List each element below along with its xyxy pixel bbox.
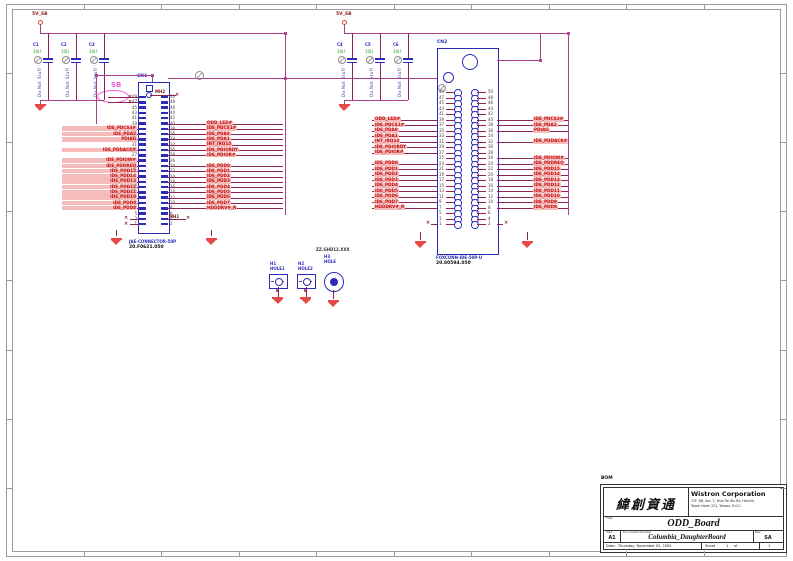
capacitor-ref: C2 <box>61 43 67 48</box>
wire <box>446 180 454 181</box>
connector-pin <box>139 170 146 173</box>
cn1-body <box>138 82 170 234</box>
wire <box>420 232 421 240</box>
connector-pin <box>139 122 146 125</box>
wire <box>477 120 486 121</box>
connector-pin <box>161 191 168 194</box>
wire <box>446 153 454 154</box>
capacitor-ref: C4 <box>337 43 343 48</box>
border-tick <box>239 551 240 556</box>
capacitor-plate <box>403 58 413 60</box>
capacitor-value: 10U <box>89 50 97 55</box>
net-label: PDIAG <box>62 137 137 142</box>
capacitor-value: 10U <box>337 50 345 55</box>
connector-pin <box>161 122 168 125</box>
gnd-symbol <box>522 243 532 248</box>
wire <box>76 63 77 100</box>
pin-number: 37 <box>439 123 444 127</box>
rev-label: Rev <box>755 531 761 534</box>
border-tick <box>780 142 786 143</box>
pin-number: 2 <box>170 222 173 226</box>
net-label: IDE_PDIOR# <box>374 150 404 155</box>
wire <box>48 63 49 100</box>
pin-number: 1 <box>439 222 442 226</box>
wire <box>446 114 454 115</box>
connector-pin <box>139 112 146 115</box>
gnd-symbol <box>111 240 121 245</box>
wire <box>130 219 139 220</box>
pin-number: 22 <box>488 167 493 171</box>
connector-pin <box>161 112 168 115</box>
border-tick <box>394 4 395 9</box>
pin-number: 14 <box>488 189 493 193</box>
connector-pin <box>139 106 146 109</box>
pin-number: 41 <box>439 112 444 116</box>
net-label: IDE_PDD6 <box>374 194 399 199</box>
tb-divider <box>604 516 783 517</box>
wire <box>446 202 454 203</box>
no-stuff-mark <box>34 56 42 64</box>
sheet-label: Sheet <box>705 544 715 548</box>
wire <box>497 60 540 61</box>
pin-number: 21 <box>439 167 444 171</box>
wire <box>96 75 152 76</box>
border-tick <box>316 4 317 9</box>
connector-pin <box>161 138 168 141</box>
border-tick <box>780 211 786 212</box>
company-logo-cjk: 緯創資通 <box>606 494 686 513</box>
no-stuff-mark <box>195 71 204 80</box>
wire-junction <box>567 32 570 35</box>
capacitor-plate <box>375 58 385 60</box>
wire <box>477 213 486 214</box>
cn2-key-circle-bottom <box>443 72 454 83</box>
wire <box>477 202 486 203</box>
wire <box>446 186 454 187</box>
pin-number: 47 <box>439 96 444 100</box>
connector-pin <box>139 202 146 205</box>
do-not-stuff-note: Do Not Stuff <box>397 65 402 97</box>
no-stuff-mark <box>394 56 402 64</box>
sheet-total: 1 <box>768 544 770 548</box>
gnd-symbol <box>273 299 283 304</box>
wire <box>108 97 139 98</box>
wire <box>477 153 486 154</box>
connector-pin <box>161 170 168 173</box>
pin-number: 28 <box>488 151 493 155</box>
pin-number: 20 <box>488 173 493 177</box>
wire <box>344 33 568 34</box>
no-stuff-mark <box>90 56 98 64</box>
wire <box>76 33 77 58</box>
border-tick <box>6 280 12 281</box>
wire <box>477 103 486 104</box>
date-label: Date: <box>606 544 616 548</box>
tb-divider <box>759 542 760 549</box>
wire <box>408 33 409 58</box>
connector-pin <box>139 196 146 199</box>
connector-pin <box>161 165 168 168</box>
title-block: 緯創資通 Wistron Corporation 21F, 88, Sec. 1… <box>600 484 787 553</box>
capacitor-ref: C6 <box>393 43 399 48</box>
schematic-sheet: CN1 MH2 MH1 JAE-CONNECTOR-50P 20.F0621.0… <box>0 0 793 561</box>
connector-pin <box>139 207 146 210</box>
wire <box>306 287 307 297</box>
pin-number: 40 <box>488 118 493 122</box>
wire <box>380 33 381 58</box>
wire <box>431 224 437 225</box>
net-label: IDE_PDIOR# <box>206 153 236 158</box>
wire <box>96 75 97 124</box>
pin-number: 36 <box>488 129 493 133</box>
border-tick <box>6 419 12 420</box>
pin-number: 6 <box>170 212 173 216</box>
wire <box>540 33 541 60</box>
gnd-symbol <box>301 299 311 304</box>
wire <box>446 92 454 93</box>
connector-pin <box>161 181 168 184</box>
connector-pin <box>161 96 168 99</box>
wire <box>380 63 381 100</box>
border-tick <box>471 4 472 9</box>
pin-number: 27 <box>439 151 444 155</box>
wire-junction <box>284 77 287 80</box>
cn2-key-circle-top <box>462 54 478 70</box>
do-not-stuff-note: Do Not Stuff <box>37 65 42 97</box>
capacitor-ref: C5 <box>365 43 371 48</box>
wire <box>40 24 41 33</box>
wire <box>477 224 486 225</box>
pin-number: 34 <box>488 134 493 138</box>
date-value: Thursday, November 03, 2005 <box>618 544 671 548</box>
wire <box>352 33 353 58</box>
connector-pin <box>161 175 168 178</box>
wire <box>477 142 486 143</box>
connector-pin <box>161 218 168 221</box>
wire <box>278 287 279 297</box>
pin-number: 11 <box>439 195 444 199</box>
cn1-key-square <box>146 85 153 92</box>
connector-pin <box>139 128 146 131</box>
wire <box>168 219 186 220</box>
no-stuff-mark <box>338 56 346 64</box>
wire <box>477 191 486 192</box>
wire <box>477 147 486 148</box>
wire <box>477 219 486 220</box>
wire <box>477 109 486 110</box>
border-tick <box>704 4 705 9</box>
wire <box>446 98 454 99</box>
tb-divider <box>688 488 689 516</box>
net-label: IDE_PDDREQ <box>533 161 565 166</box>
wire <box>446 191 454 192</box>
wire <box>446 147 454 148</box>
gnd-symbol <box>328 302 338 307</box>
pin-number: 12 <box>488 195 493 199</box>
no-stuff-mark <box>366 56 374 64</box>
no-connect-x: × <box>124 222 128 227</box>
wire <box>446 131 454 132</box>
wire <box>497 224 503 225</box>
connector-pin <box>161 223 168 226</box>
connector-pin <box>161 196 168 199</box>
border-tick <box>780 419 786 420</box>
power-net-label: 5V_SB <box>336 12 352 17</box>
pin-number: 42 <box>170 116 175 120</box>
wire <box>477 158 486 159</box>
wire <box>168 78 437 79</box>
connector-pin <box>139 218 146 221</box>
connector-pin <box>139 175 146 178</box>
capacitor-ref: C3 <box>89 43 95 48</box>
border-tick <box>471 551 472 556</box>
connector-pin <box>139 117 146 120</box>
pin-number: 7 <box>439 206 442 210</box>
pin-number: 48 <box>488 96 493 100</box>
capacitor-ref: C1 <box>33 43 39 48</box>
wire <box>40 100 104 101</box>
border-tick <box>316 551 317 556</box>
capacitor-value: 10U <box>61 50 69 55</box>
pin-number: 31 <box>439 140 444 144</box>
wire <box>104 63 105 100</box>
wire <box>352 63 353 100</box>
net-label: IDE_PDD8 <box>62 206 137 211</box>
wire <box>477 98 486 99</box>
pin-number: 23 <box>439 162 444 166</box>
connector-pin <box>139 133 146 136</box>
border-tick <box>161 4 162 9</box>
wire-junction <box>95 74 98 77</box>
wire <box>446 158 454 159</box>
capacitor-value: 10U <box>393 50 401 55</box>
company-address-2: Taipei Hsien 221, Taiwan, R.O.C. <box>691 505 742 509</box>
net-label: INT_IRQ14 <box>374 139 400 144</box>
cn2-part-number: 20.80594.050 <box>436 261 471 266</box>
no-stuff-mark <box>62 56 70 64</box>
net-label: PDIAG <box>533 128 550 133</box>
wire <box>40 33 285 34</box>
connector-pin <box>161 143 168 146</box>
capacitor-plate <box>71 58 81 60</box>
pin-number: 44 <box>488 107 493 111</box>
pin-number: 50 <box>488 90 493 94</box>
border-tick <box>239 4 240 9</box>
pin-number: 15 <box>439 184 444 188</box>
pin-number: 26 <box>488 156 493 160</box>
no-connect-x: × <box>128 100 132 105</box>
wire <box>446 197 454 198</box>
pin-number: 39 <box>439 118 444 122</box>
border-tick <box>549 4 550 9</box>
no-connect-x: × <box>175 93 179 98</box>
pin-number: 35 <box>439 129 444 133</box>
border-tick <box>84 4 85 9</box>
company-name: Wistron Corporation <box>691 491 766 498</box>
no-connect-x: × <box>504 221 508 226</box>
connector-pin <box>139 223 146 226</box>
connector-pin <box>161 101 168 104</box>
hole-pad-dash <box>271 281 274 282</box>
gnd-symbol <box>35 106 45 111</box>
pin-number: 6 <box>488 211 491 215</box>
connector-pin <box>139 212 146 215</box>
border-tick <box>780 280 786 281</box>
wire <box>446 136 454 137</box>
pin-number: 25 <box>439 156 444 160</box>
title-block-inner: 緯創資通 Wistron Corporation 21F, 88, Sec. 1… <box>603 487 784 550</box>
no-connect-x: × <box>186 216 190 221</box>
gnd-symbol <box>339 106 349 111</box>
net-label: IDE_PDD14 <box>533 172 561 177</box>
connector-pin <box>161 149 168 152</box>
pin-number: 43 <box>439 107 444 111</box>
wire <box>477 197 486 198</box>
tb-divider <box>701 542 702 549</box>
no-stuff-mark <box>438 84 446 92</box>
wire-junction <box>151 74 154 77</box>
power-net-label: 5V_SB <box>32 12 48 17</box>
border-tick <box>161 551 162 556</box>
wire <box>150 95 176 96</box>
connector-pin <box>139 186 146 189</box>
net-label: IDE_PDA0 <box>374 128 399 133</box>
capacitor-plate <box>347 58 357 60</box>
pin-number: 38 <box>488 123 493 127</box>
sheet-number: 1 <box>726 544 728 548</box>
wire <box>477 125 486 126</box>
hole-pad-dash <box>299 281 302 282</box>
connector-pin <box>139 143 146 146</box>
connector-pin <box>139 101 146 104</box>
wire <box>477 186 486 187</box>
no-connect-x: × <box>426 221 430 226</box>
border-tick <box>549 551 550 556</box>
pin-number: 33 <box>439 134 444 138</box>
wire <box>104 33 105 58</box>
pin-number: 48 <box>170 100 175 104</box>
net-label: IDE_PDD8 <box>533 205 558 210</box>
wire <box>344 100 408 101</box>
border-tick <box>6 211 12 212</box>
pin-number: 45 <box>439 101 444 105</box>
capacitor-plate <box>99 58 109 60</box>
pin-number: 41 <box>126 116 137 120</box>
document-number-value: Columbia_DaughterBoard <box>621 533 753 541</box>
connector-pin <box>471 221 479 229</box>
net-label: IDE_PDD0 <box>374 161 399 166</box>
wire <box>130 224 139 225</box>
wire <box>477 180 486 181</box>
hole-label: HOLE1 <box>270 267 285 272</box>
connector-pin <box>161 207 168 210</box>
connector-pin <box>139 96 146 99</box>
wire <box>211 230 212 236</box>
pin-number: 13 <box>439 189 444 193</box>
capacitor-plate <box>43 58 53 60</box>
hole-label: HOLE <box>324 260 336 265</box>
pin-number: 24 <box>488 162 493 166</box>
hole-part-number: ZZ.GHD12.XXX <box>316 248 350 253</box>
sb-bubble-label: SB <box>111 81 121 89</box>
hole-pad-dash <box>282 281 285 282</box>
net-label: HDDDRV#_R <box>206 206 237 211</box>
border-tick <box>626 4 627 9</box>
wire <box>568 33 569 215</box>
wire <box>477 92 486 93</box>
size-value: A1 <box>605 535 619 541</box>
border-tick <box>6 73 12 74</box>
wire-junction <box>539 59 542 62</box>
pin-number: 2 <box>488 222 491 226</box>
wire <box>48 33 49 58</box>
gnd-symbol <box>206 240 216 245</box>
connector-pin <box>139 191 146 194</box>
border-tick <box>626 551 627 556</box>
wire <box>446 125 454 126</box>
pin-number: 8 <box>488 206 491 210</box>
border-tick <box>780 488 786 489</box>
connector-pin <box>161 212 168 215</box>
wire <box>446 208 454 209</box>
pin-number: 3 <box>439 217 442 221</box>
pin-number: 17 <box>439 178 444 182</box>
wire <box>446 109 454 110</box>
wire <box>446 164 454 165</box>
hole-pad-dash <box>310 281 313 282</box>
pin-number: 29 <box>439 145 444 149</box>
board-title: ODD_Board <box>604 518 783 529</box>
border-tick <box>394 551 395 556</box>
wire <box>477 114 486 115</box>
net-label: IDE_PDCS3# <box>533 117 564 122</box>
border-tick <box>780 350 786 351</box>
pin-number: 42 <box>488 112 493 116</box>
connector-pin <box>161 128 168 131</box>
connector-pin <box>161 106 168 109</box>
border-tick <box>6 142 12 143</box>
rev-value: SA <box>754 535 782 541</box>
wire <box>285 33 286 215</box>
hole-symbol-disc <box>330 278 338 286</box>
wire <box>446 213 454 214</box>
connector-pin <box>161 159 168 162</box>
pin-number: 19 <box>439 173 444 177</box>
do-not-stuff-note: Do Not Stuff <box>65 65 70 97</box>
net-label: IDE_PDD4 <box>374 183 399 188</box>
cn1-part-name: JAE-CONNECTOR-50P <box>129 239 176 244</box>
wire <box>446 175 454 176</box>
wire <box>446 219 454 220</box>
pin-number: 18 <box>488 178 493 182</box>
connector-pin <box>139 138 146 141</box>
wire <box>477 131 486 132</box>
wire <box>333 290 334 299</box>
pin-number: 16 <box>488 184 493 188</box>
pin-number: 26 <box>170 159 175 163</box>
wire <box>446 103 454 104</box>
wire <box>477 136 486 137</box>
pin-number: 46 <box>170 106 175 110</box>
cn1-part-number: 20.F0621.050 <box>129 245 164 250</box>
net-label: HDDDRV#_R <box>374 205 405 210</box>
net-label: IDE_PDDACK# <box>533 139 568 144</box>
cn2-part-name: FOXCONN-IDE-50P-U <box>436 255 482 260</box>
hole-symbol-circle <box>275 278 283 286</box>
do-not-stuff-note: Do Not Stuff <box>341 65 346 97</box>
wire <box>477 208 486 209</box>
wire <box>527 232 528 240</box>
